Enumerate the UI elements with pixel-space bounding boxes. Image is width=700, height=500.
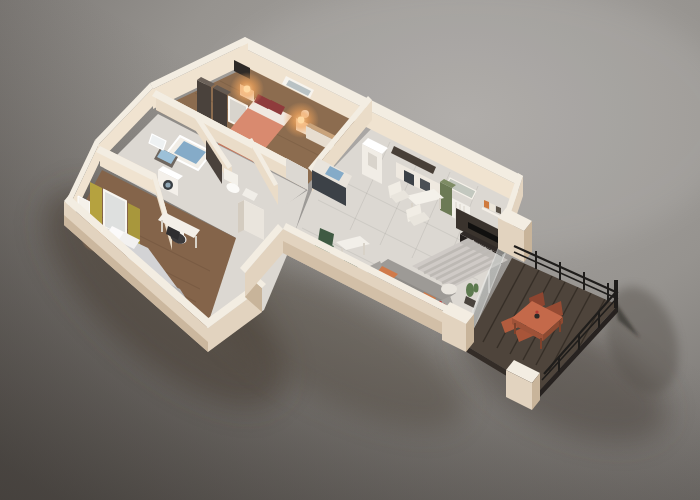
table-vase <box>534 313 539 318</box>
scene-canvas <box>0 0 700 500</box>
lamp-core-right <box>298 117 305 124</box>
cactus-arm <box>474 284 479 293</box>
green-cabinet-front <box>440 182 452 216</box>
round-pouf <box>441 284 457 295</box>
washer-door-glass <box>165 182 170 187</box>
hall-cabinet-side <box>238 200 244 233</box>
floorplan-render <box>0 0 700 500</box>
lamp-core-left <box>244 86 251 93</box>
vase-flower <box>535 310 538 313</box>
cactus-body <box>466 283 474 297</box>
